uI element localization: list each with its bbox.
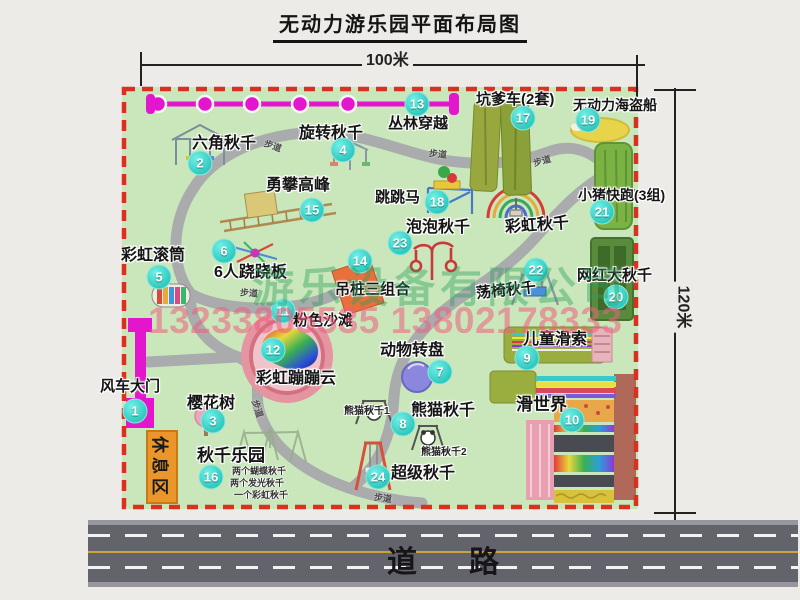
label-rainbow-roller: 彩虹滚筒	[121, 248, 185, 265]
badge-23: 23	[388, 231, 413, 256]
road-label: 道路	[88, 537, 798, 581]
badge-24: 24	[366, 465, 391, 490]
label-piggy-run: 小猪快跑(3组)	[578, 188, 665, 203]
road-edge-bottom	[88, 582, 798, 587]
label-super-swing: 超级秋千	[391, 466, 455, 483]
width-dimension-label: 100米	[362, 46, 413, 70]
label-bubble-swing: 泡泡秋千	[406, 220, 470, 237]
badge-18: 18	[425, 190, 450, 215]
badge-4: 4	[331, 138, 356, 163]
badge-13: 13	[405, 92, 430, 117]
label-swing-park: 秋千乐园	[197, 447, 265, 465]
label-climbing: 勇攀高峰	[266, 178, 330, 195]
badge-5: 5	[147, 265, 172, 290]
label-jumping-horse: 跳跳马	[375, 190, 420, 206]
label-animal-turntable: 动物转盘	[380, 343, 444, 360]
park-plan-canvas: 无动力游乐园平面布局图	[0, 0, 800, 600]
badge-8: 8	[391, 412, 416, 437]
label-panda-swing-2: 熊猫秋千2	[421, 443, 467, 458]
swing-park-note-3: 一个彩虹秋千	[234, 490, 288, 501]
label-windmill-gate: 风车大门	[100, 379, 160, 395]
road: 道路	[88, 520, 798, 587]
badge-2: 2	[188, 151, 213, 176]
label-rainbow-cloud: 彩虹蹦蹦云	[256, 371, 336, 388]
badge-9: 9	[515, 346, 540, 371]
label-panda-swing-1: 熊猫秋千1	[344, 402, 390, 417]
watermark-phone: 13233805535 13802178333	[148, 300, 623, 342]
label-jungle-crossing: 丛林穿越	[388, 116, 448, 132]
badge-21: 21	[590, 200, 615, 225]
swing-park-note-2: 两个发光秋千	[230, 478, 284, 489]
label-panda-swing: 熊猫秋千	[411, 403, 475, 420]
footpath-label: 步道	[373, 490, 393, 505]
badge-7: 7	[428, 360, 453, 385]
footpath-label: 步道	[428, 146, 447, 161]
badge-17: 17	[511, 106, 536, 131]
badge-19: 19	[576, 108, 601, 133]
rest-area-label: 休息区	[149, 436, 174, 499]
label-rotating-swing: 旋转秋千	[299, 126, 363, 143]
road-edge-top	[88, 520, 798, 525]
badge-15: 15	[300, 198, 325, 223]
badge-10: 10	[560, 408, 585, 433]
badge-3: 3	[201, 409, 226, 434]
label-pit-cars: 坑爹车(2套)	[476, 92, 554, 108]
badge-1: 1	[123, 399, 148, 424]
swing-park-note-1: 两个蝴蝶秋千	[232, 466, 286, 477]
badge-6: 6	[212, 239, 237, 264]
height-dimension-label: 120米	[673, 282, 697, 333]
badge-16: 16	[199, 465, 224, 490]
label-slide-world: 滑世界	[516, 396, 567, 414]
